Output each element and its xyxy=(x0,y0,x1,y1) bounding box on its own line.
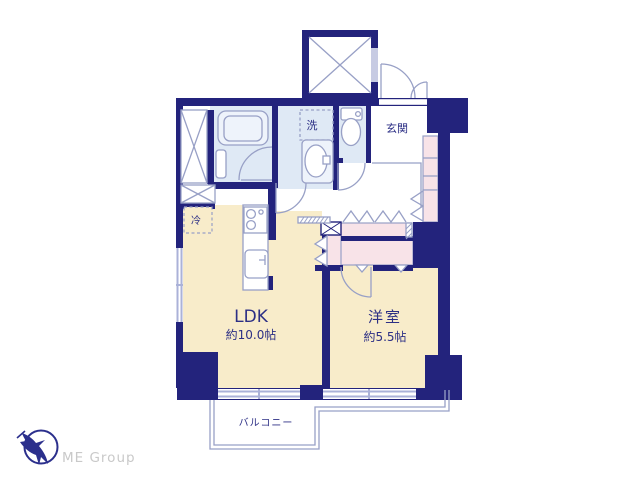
wall-kitchen-hall xyxy=(268,183,276,240)
wall-right-upper xyxy=(438,133,450,223)
label-ldk-size: 約10.0帖 xyxy=(226,327,277,342)
entrance-door-child-arc xyxy=(411,82,427,98)
elevator-shaft xyxy=(302,30,378,100)
wall-toilet-right xyxy=(366,106,371,163)
floor-plan-drawing: LDK 約10.0帖 洋室 約5.5帖 玄関 洗 冷 バルコニー ME Grou… xyxy=(0,0,640,480)
label-bedroom: 洋室 xyxy=(368,308,402,326)
label-balcony: バルコニー xyxy=(239,417,294,429)
bedroom-floor xyxy=(326,265,440,388)
label-bedroom-size: 約5.5帖 xyxy=(363,329,406,344)
hall-closet-folding-door xyxy=(375,211,406,222)
bath-counter xyxy=(216,150,226,178)
toilet-flush xyxy=(356,112,361,117)
toilet-bowl xyxy=(342,119,361,146)
wall-ldk-bedroom xyxy=(322,267,330,388)
ldk-closet-strip xyxy=(327,235,341,267)
shoe-cabinet xyxy=(423,136,438,190)
hall-closet-upper xyxy=(340,223,412,237)
bedroom-closet xyxy=(340,240,413,265)
entrance-door-arc xyxy=(381,64,415,98)
wall-washroom-bottom xyxy=(208,182,276,189)
wall-toilet-jamb xyxy=(333,158,343,163)
entrance-sill xyxy=(379,99,427,105)
logo-text: ME Group xyxy=(62,450,136,466)
label-washer: 洗 xyxy=(307,119,318,132)
wall-closet-mid xyxy=(341,236,413,241)
wall-corner-topright xyxy=(427,98,468,133)
vanity-faucet xyxy=(323,156,330,164)
right-closet-door xyxy=(411,206,423,221)
logo: ME Group xyxy=(17,431,136,467)
wall-right-bedroom xyxy=(438,268,450,358)
toilet-door-arc xyxy=(338,163,365,190)
label-entrance: 玄関 xyxy=(386,121,408,135)
ldk-floor-east xyxy=(276,211,322,388)
wall-right-mid xyxy=(413,222,450,268)
wall-corner-bottomleft xyxy=(177,352,218,388)
wall-bath-washroom xyxy=(272,106,278,188)
hall-closet-right xyxy=(423,190,438,222)
label-fridge: 冷 xyxy=(191,214,201,227)
wall-pipe-column xyxy=(207,110,214,184)
elevator-door xyxy=(371,48,378,82)
wall-bedroom-top-left xyxy=(315,265,343,271)
hall-closet-folding-door xyxy=(343,211,374,222)
closet-end-panel xyxy=(406,223,412,237)
wall-corner-bottomright xyxy=(425,355,462,390)
label-ldk: LDK xyxy=(234,307,269,327)
floor-plan-page: LDK 約10.0帖 洋室 約5.5帖 玄関 洗 冷 バルコニー ME Grou… xyxy=(0,0,640,480)
